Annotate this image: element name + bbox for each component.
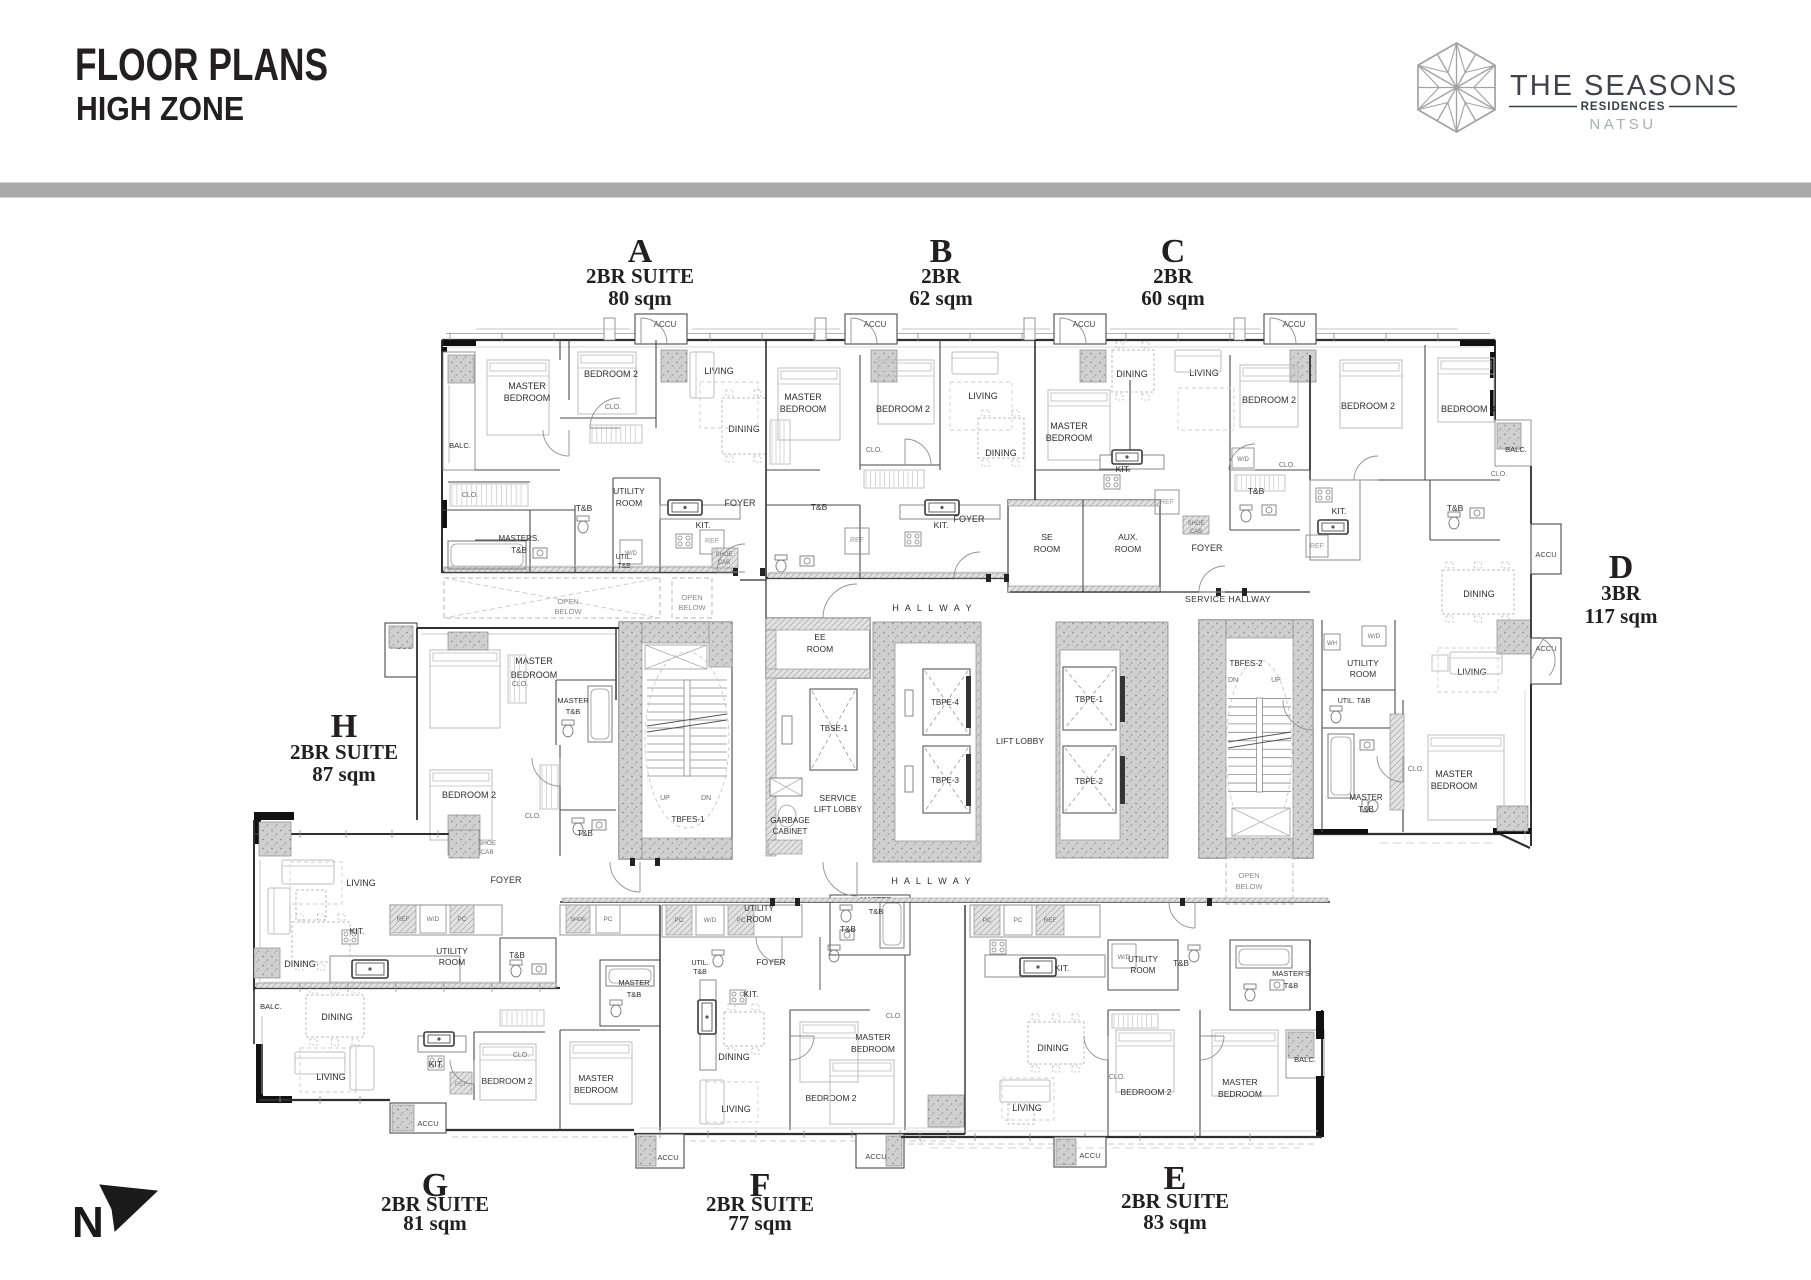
svg-text:KIT.: KIT. (934, 520, 949, 530)
svg-text:PC: PC (603, 916, 612, 923)
svg-text:LIVING: LIVING (1189, 368, 1219, 378)
svg-text:CAB: CAB (1190, 529, 1202, 535)
svg-text:UTIL. T&B: UTIL. T&B (1338, 698, 1371, 705)
svg-text:T&B: T&B (577, 829, 593, 838)
svg-text:TBPE-4: TBPE-4 (931, 698, 960, 707)
svg-text:FOYER: FOYER (724, 498, 756, 508)
svg-text:DINING: DINING (1037, 1043, 1069, 1053)
svg-text:KIT.: KIT. (350, 926, 365, 936)
svg-text:CLO.: CLO. (1109, 1074, 1125, 1081)
svg-text:DINING: DINING (284, 959, 316, 969)
svg-text:ROOM: ROOM (1034, 544, 1060, 554)
svg-text:T&B: T&B (1358, 805, 1374, 814)
svg-text:TBPE-3: TBPE-3 (931, 776, 960, 785)
svg-text:BALC.: BALC. (1505, 445, 1527, 454)
svg-text:UTILITY: UTILITY (1128, 955, 1158, 964)
svg-text:ACCU: ACCU (1073, 320, 1096, 329)
svg-text:80 sqm: 80 sqm (608, 286, 672, 310)
svg-text:T&B: T&B (869, 907, 884, 916)
svg-text:SHOE: SHOE (478, 840, 497, 847)
svg-text:81 sqm: 81 sqm (403, 1211, 467, 1235)
svg-text:UTILITY: UTILITY (1347, 658, 1379, 668)
svg-text:2BR SUITE: 2BR SUITE (290, 740, 398, 764)
svg-text:BEDROOM 2: BEDROOM 2 (1120, 1087, 1171, 1097)
svg-text:LIVING: LIVING (721, 1104, 751, 1114)
svg-text:2BR: 2BR (921, 264, 962, 288)
svg-text:FOYER: FOYER (953, 514, 985, 524)
svg-text:TBFES-1: TBFES-1 (672, 815, 705, 824)
svg-text:BEDROOM: BEDROOM (851, 1044, 895, 1054)
svg-text:UTILITY: UTILITY (744, 904, 774, 913)
svg-text:BELOW: BELOW (678, 603, 706, 612)
svg-text:LIVING: LIVING (968, 391, 998, 401)
svg-text:LIFT LOBBY: LIFT LOBBY (814, 804, 862, 814)
svg-text:REF: REF (705, 538, 719, 545)
svg-text:BEDROOM 2: BEDROOM 2 (442, 790, 496, 800)
svg-text:FOYER: FOYER (1191, 543, 1223, 553)
svg-text:BEDROOM 3: BEDROOM 3 (1441, 404, 1495, 414)
svg-text:BEDROOM: BEDROOM (504, 393, 551, 403)
svg-text:BEDROOM 2: BEDROOM 2 (1242, 395, 1296, 405)
svg-text:T&B: T&B (1284, 981, 1299, 990)
svg-text:CLO.: CLO. (512, 681, 528, 688)
svg-text:BEDROOM 2: BEDROOM 2 (876, 404, 930, 414)
svg-text:T&B: T&B (576, 503, 593, 513)
svg-text:LIVING: LIVING (346, 878, 376, 888)
svg-text:REF: REF (1160, 499, 1174, 506)
svg-text:H A L L W A Y: H A L L W A Y (892, 603, 973, 613)
svg-text:MASTER: MASTER (784, 392, 822, 402)
svg-text:CLO.: CLO. (462, 492, 478, 499)
svg-text:MASTER: MASTER (508, 381, 546, 391)
svg-text:T&B: T&B (617, 563, 631, 570)
svg-text:DN: DN (1228, 677, 1238, 684)
svg-text:CLO.: CLO. (1279, 462, 1295, 469)
svg-text:CLO.: CLO. (886, 1013, 902, 1020)
svg-text:W/D: W/D (1368, 633, 1381, 640)
svg-text:LIVING: LIVING (316, 1072, 346, 1082)
svg-text:REF: REF (1310, 543, 1324, 550)
svg-text:BALC.: BALC. (449, 441, 471, 450)
svg-text:ROOM: ROOM (1350, 669, 1376, 679)
svg-text:TBFES-2: TBFES-2 (1230, 659, 1263, 668)
svg-text:H A L L W A Y: H A L L W A Y (891, 876, 972, 886)
svg-text:SHOE: SHOE (570, 917, 586, 923)
svg-text:62 sqm: 62 sqm (909, 286, 973, 310)
svg-text:OPEN: OPEN (681, 593, 702, 602)
svg-text:ACCU: ACCU (864, 320, 887, 329)
svg-text:UTIL.: UTIL. (615, 554, 632, 561)
svg-text:NATSU: NATSU (1589, 116, 1656, 133)
svg-text:CLO.: CLO. (1408, 766, 1424, 773)
svg-text:MASTERS.: MASTERS. (499, 534, 540, 543)
svg-text:EE: EE (814, 632, 826, 642)
svg-text:DINING: DINING (985, 448, 1017, 458)
svg-text:W/D: W/D (1237, 457, 1249, 463)
svg-text:BEDROOM 2: BEDROOM 2 (481, 1076, 532, 1086)
svg-text:DINING: DINING (718, 1052, 750, 1062)
svg-text:SHOE: SHOE (1187, 521, 1204, 527)
svg-text:83 sqm: 83 sqm (1143, 1210, 1207, 1234)
svg-text:KIT.: KIT. (696, 520, 711, 530)
svg-text:MASTER: MASTER (1349, 793, 1383, 802)
svg-text:BEDROOM: BEDROOM (1218, 1089, 1262, 1099)
svg-text:2BR: 2BR (1153, 264, 1194, 288)
svg-text:PC: PC (982, 917, 991, 924)
svg-text:SE: SE (1041, 532, 1053, 542)
svg-text:MASTER: MASTER (1222, 1077, 1257, 1087)
svg-text:ACCU: ACCU (657, 1153, 678, 1162)
svg-text:REF: REF (397, 916, 410, 923)
svg-text:ROOM: ROOM (1115, 544, 1141, 554)
svg-text:MASTER'S: MASTER'S (1272, 969, 1310, 978)
svg-text:PC: PC (674, 917, 683, 924)
svg-text:GARBAGE: GARBAGE (770, 816, 810, 825)
svg-text:DN: DN (701, 795, 711, 802)
svg-text:ROOM: ROOM (616, 498, 642, 508)
svg-text:T&B: T&B (1173, 959, 1189, 968)
svg-text:UTIL.: UTIL. (691, 960, 708, 967)
svg-text:CLO.: CLO. (866, 447, 882, 454)
svg-text:N: N (72, 1198, 104, 1247)
svg-text:PC: PC (457, 916, 466, 923)
svg-text:CLO.: CLO. (513, 1052, 529, 1059)
svg-text:DINING: DINING (728, 424, 760, 434)
svg-text:TBPE-1: TBPE-1 (1075, 695, 1104, 704)
svg-text:DINING: DINING (321, 1012, 353, 1022)
svg-text:KIT.: KIT. (1055, 963, 1070, 973)
svg-text:ROOM: ROOM (1131, 966, 1156, 975)
svg-text:T&B: T&B (840, 925, 856, 934)
svg-text:BEDROOM 2: BEDROOM 2 (1341, 401, 1395, 411)
svg-text:FOYER: FOYER (756, 957, 785, 967)
svg-text:FLOOR PLANS: FLOOR PLANS (75, 39, 328, 90)
svg-text:BELOW: BELOW (554, 607, 582, 616)
svg-text:PC: PC (736, 917, 745, 924)
svg-text:LIVING: LIVING (1457, 667, 1487, 677)
svg-text:MASTER: MASTER (557, 696, 589, 705)
svg-text:KIT.: KIT. (744, 989, 759, 999)
svg-text:87 sqm: 87 sqm (312, 762, 376, 786)
svg-text:BEDROOM: BEDROOM (574, 1085, 618, 1095)
svg-text:BEDROOM 2: BEDROOM 2 (805, 1093, 856, 1103)
svg-text:WH: WH (1327, 641, 1337, 647)
svg-text:ACCU: ACCU (654, 320, 677, 329)
svg-text:KIT.: KIT. (1116, 464, 1131, 474)
svg-text:T&B: T&B (811, 502, 828, 512)
svg-text:UP: UP (660, 795, 670, 802)
svg-text:60 sqm: 60 sqm (1141, 286, 1205, 310)
svg-text:ACCU: ACCU (1535, 550, 1556, 559)
svg-text:ROOM: ROOM (439, 957, 465, 967)
svg-text:FOYER: FOYER (490, 875, 522, 885)
svg-text:T&B: T&B (1248, 486, 1265, 496)
svg-text:MASTER: MASTER (1050, 421, 1088, 431)
svg-text:REF: REF (1044, 917, 1057, 924)
svg-text:LIVING: LIVING (704, 366, 734, 376)
svg-text:LIVING: LIVING (1012, 1103, 1042, 1113)
svg-text:T&B: T&B (1447, 503, 1464, 513)
svg-text:REF: REF (455, 1081, 468, 1088)
svg-text:CAB: CAB (480, 849, 493, 856)
svg-text:LIFT LOBBY: LIFT LOBBY (996, 736, 1044, 746)
svg-text:UP: UP (1271, 677, 1281, 684)
svg-text:117 sqm: 117 sqm (1585, 604, 1658, 628)
svg-text:ACCU: ACCU (1079, 1151, 1100, 1160)
svg-text:KIT.: KIT. (429, 1059, 444, 1069)
svg-text:MASTER: MASTER (515, 656, 553, 666)
svg-text:UTILITY: UTILITY (436, 946, 468, 956)
svg-text:HIGH ZONE: HIGH ZONE (76, 90, 244, 127)
svg-text:BEDROOM: BEDROOM (1046, 433, 1093, 443)
svg-text:77 sqm: 77 sqm (728, 1211, 792, 1235)
svg-text:ROOM: ROOM (747, 915, 772, 924)
svg-text:BEDROOM: BEDROOM (1431, 781, 1478, 791)
svg-text:CLO.: CLO. (525, 813, 541, 820)
svg-text:T&B: T&B (511, 546, 527, 555)
svg-text:CLO.: CLO. (605, 404, 621, 411)
svg-text:AUX.: AUX. (1118, 532, 1138, 542)
svg-text:KIT.: KIT. (1332, 506, 1347, 516)
svg-text:MASTER: MASTER (1435, 769, 1473, 779)
svg-text:BEDROOM 2: BEDROOM 2 (584, 369, 638, 379)
svg-text:BEDROOM: BEDROOM (511, 670, 558, 680)
svg-text:CABINET: CABINET (773, 827, 808, 836)
svg-text:W/D: W/D (427, 916, 440, 923)
svg-text:T&B: T&B (509, 951, 525, 960)
svg-text:REF: REF (850, 537, 864, 544)
svg-text:ACCU: ACCU (1283, 320, 1306, 329)
svg-text:CLO.: CLO. (1491, 471, 1507, 478)
svg-text:ACCU: ACCU (865, 1152, 886, 1161)
svg-text:TBPE-2: TBPE-2 (1075, 777, 1104, 786)
svg-text:ROOM: ROOM (807, 644, 833, 654)
svg-text:ACCU: ACCU (417, 1119, 438, 1128)
svg-text:MASTER: MASTER (855, 1032, 890, 1042)
svg-text:BEDROOM: BEDROOM (780, 404, 827, 414)
svg-text:W/D: W/D (704, 917, 717, 924)
svg-text:DINING: DINING (1463, 589, 1495, 599)
svg-text:BALC.: BALC. (260, 1002, 282, 1011)
svg-text:SERVICE: SERVICE (819, 793, 856, 803)
svg-text:OPEN: OPEN (557, 597, 578, 606)
svg-text:MASTER: MASTER (578, 1073, 613, 1083)
svg-text:PC: PC (1013, 917, 1022, 924)
svg-text:OPEN: OPEN (1238, 871, 1259, 880)
svg-text:DINING: DINING (1116, 369, 1148, 379)
svg-text:T&B: T&B (693, 969, 707, 976)
svg-text:BALC.: BALC. (1294, 1055, 1316, 1064)
svg-text:2BR SUITE: 2BR SUITE (586, 264, 694, 288)
svg-text:MASTER: MASTER (618, 978, 650, 987)
svg-text:UTILITY: UTILITY (613, 486, 645, 496)
svg-text:T&B: T&B (627, 990, 642, 999)
svg-text:3BR: 3BR (1601, 581, 1642, 605)
svg-text:BELOW: BELOW (1235, 882, 1263, 891)
svg-text:TBSE-1: TBSE-1 (820, 724, 849, 733)
svg-text:RESIDENCES: RESIDENCES (1581, 101, 1666, 113)
svg-text:THE SEASONS: THE SEASONS (1510, 70, 1738, 102)
svg-text:T&B: T&B (566, 707, 581, 716)
svg-text:SERVICE HALLWAY: SERVICE HALLWAY (1185, 594, 1271, 604)
